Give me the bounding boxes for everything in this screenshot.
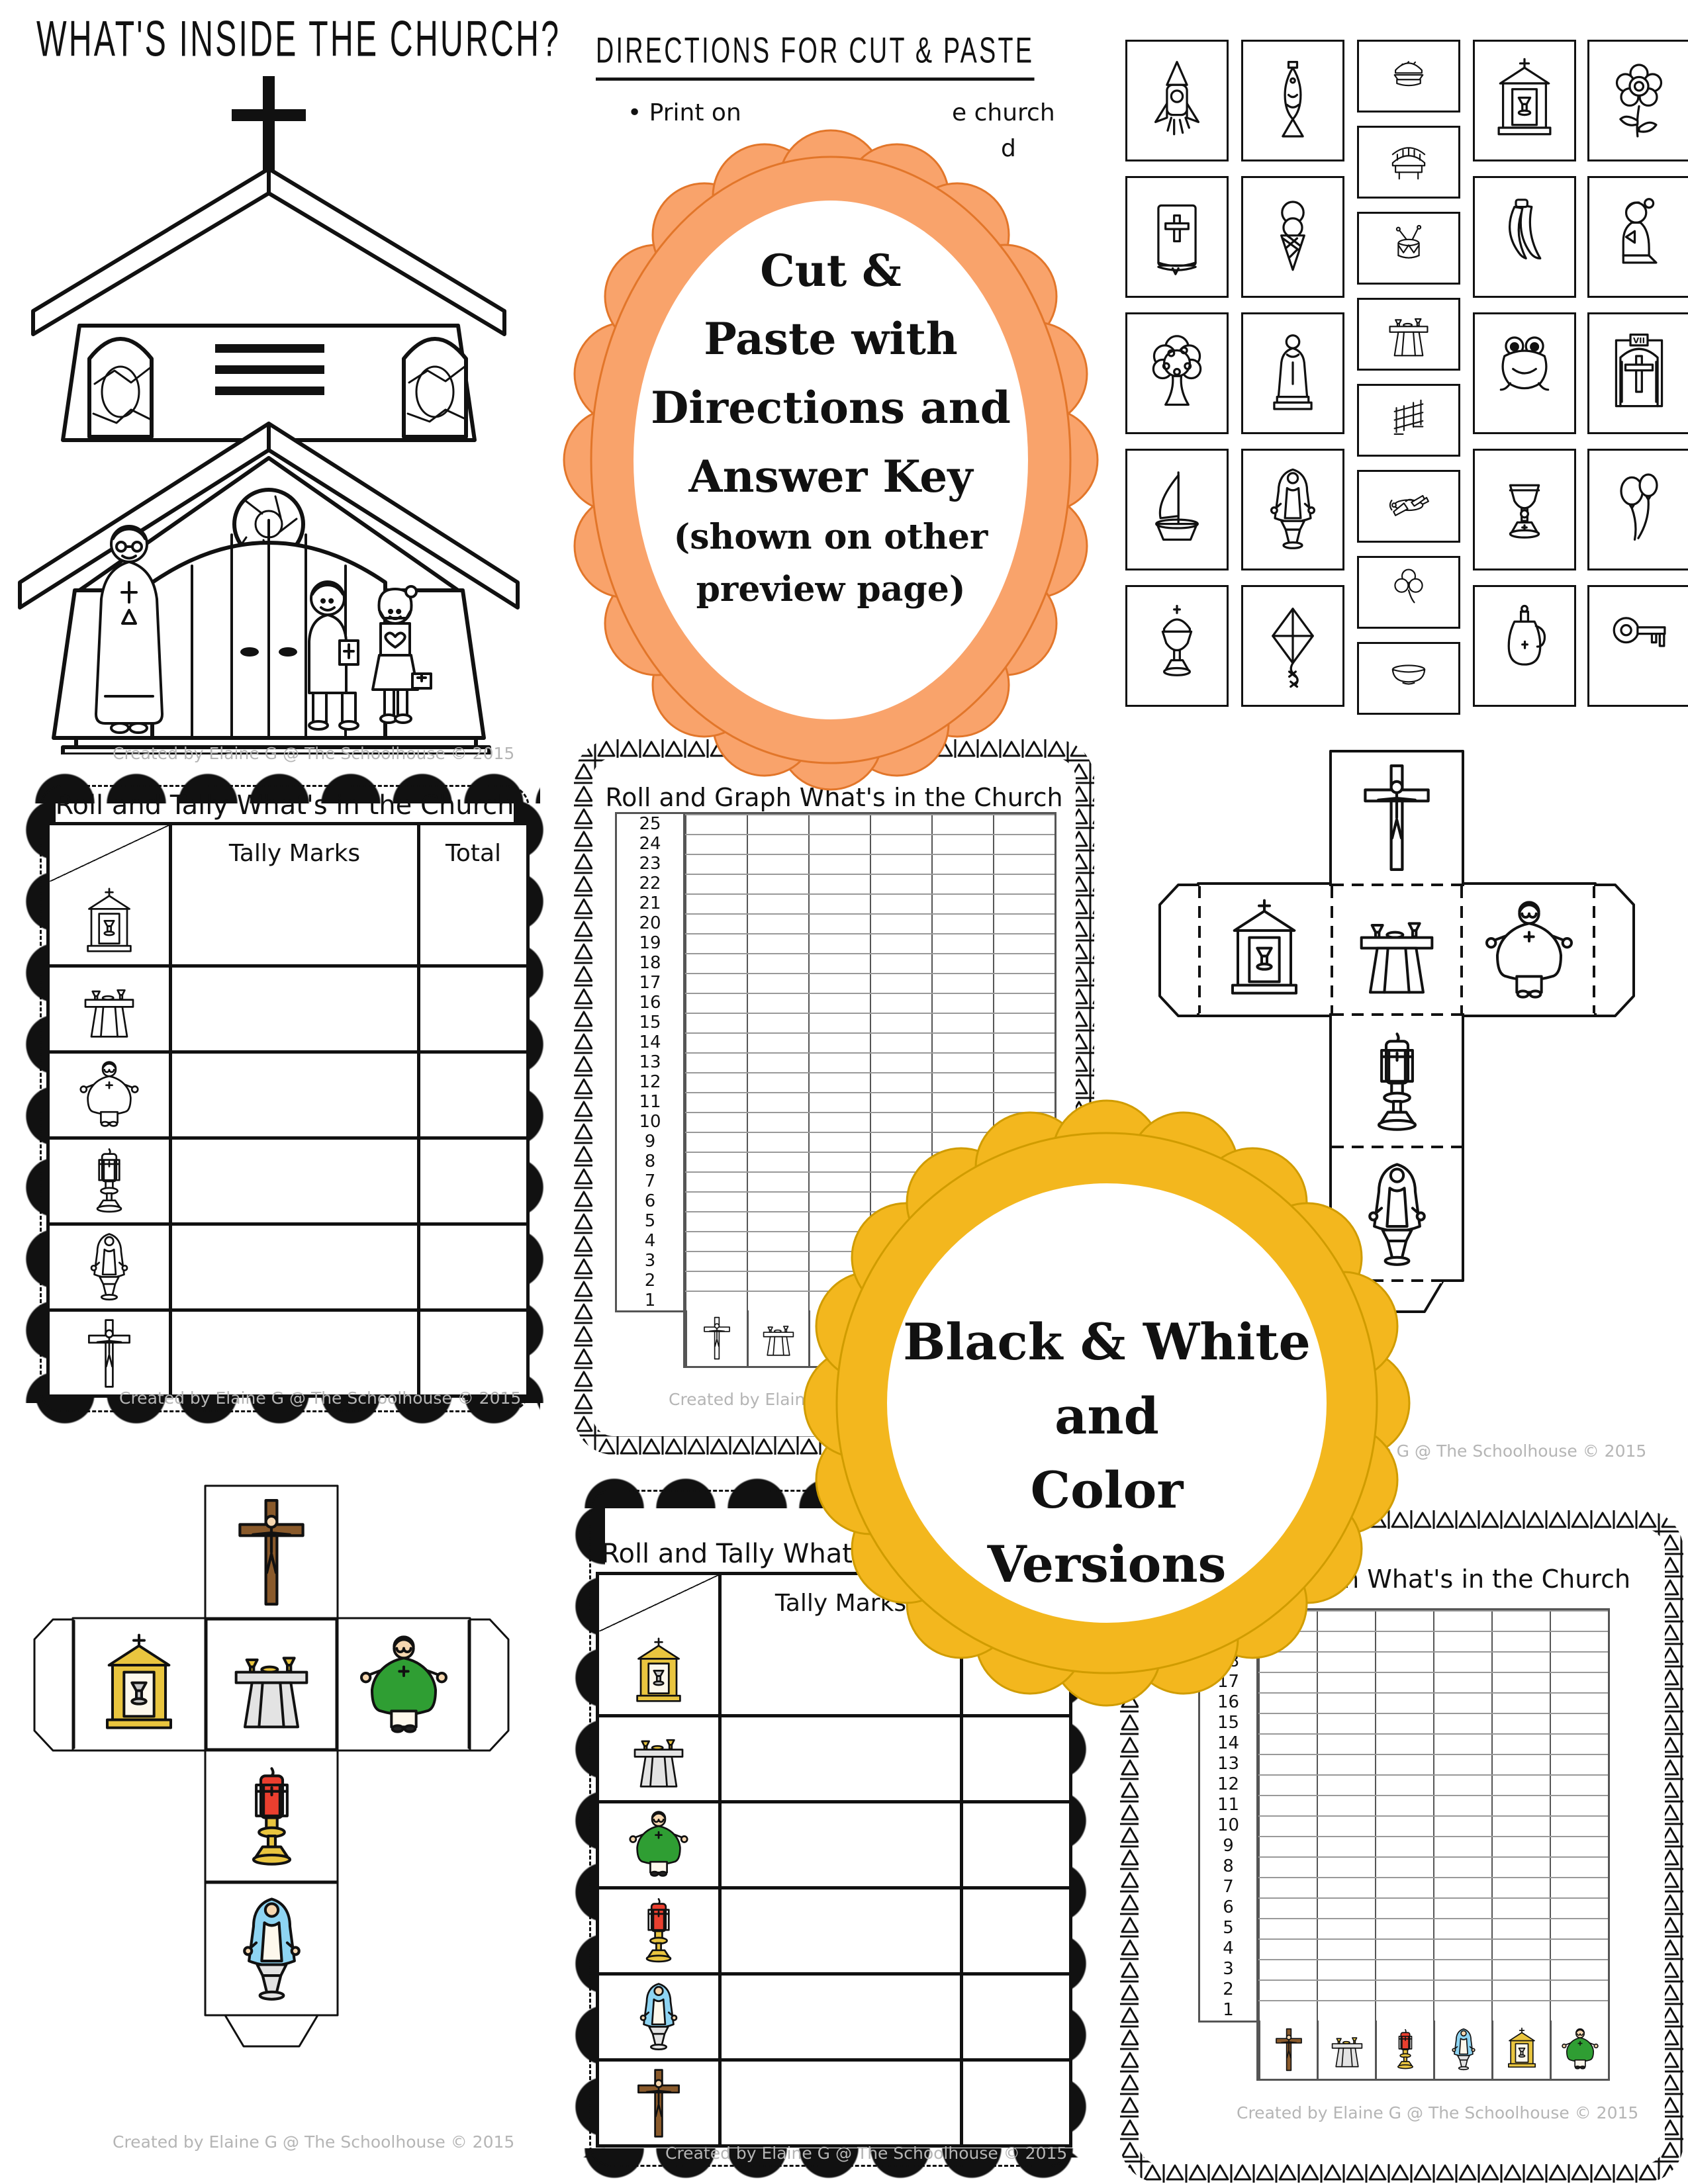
upper-roof (33, 169, 269, 334)
priest-icon (81, 1062, 138, 1126)
tally-marks-cell (169, 968, 417, 1050)
card-ice-cream (1241, 176, 1344, 298)
card-tree (1125, 312, 1229, 434)
tally-table-color: Tally Marks Total (596, 1572, 1072, 2148)
rocket-icon (1156, 62, 1199, 134)
orange-badge-text: Cut & Paste with Directions and Answer K… (626, 237, 1036, 615)
altar-icon (764, 1326, 794, 1355)
saint-icon (1274, 336, 1311, 409)
altar-icon (85, 990, 133, 1036)
steeple-cross-icon (263, 76, 275, 182)
axis-number: 19 (617, 933, 683, 953)
tally-corner-cell (50, 825, 169, 882)
axis-number: 12 (617, 1072, 683, 1092)
axis-number: 4 (1200, 1938, 1256, 1959)
tally-header-row: Tally Marks Total (50, 825, 526, 882)
mary-icon (1272, 470, 1315, 549)
axis-number: 22 (617, 874, 683, 893)
yellow-badge-text: Black & White and Color Versions (888, 1305, 1325, 1602)
tally-row (50, 882, 526, 964)
glue-tab-bottom (225, 2015, 318, 2046)
axis-number: 10 (1200, 1815, 1256, 1836)
axis-number: 4 (617, 1231, 683, 1251)
tally-sheet-bw: Roll and Tally What's in the Church Tall… (20, 768, 549, 1430)
tabernacle-icon (1499, 59, 1550, 134)
fish-icon (1283, 62, 1303, 136)
graph-grid-color: 2019181716151413121110987654321 (1198, 1608, 1610, 2023)
tally-total-header: Total (417, 825, 526, 882)
card-bible (1125, 176, 1229, 298)
glue-flap-left (1160, 885, 1198, 1016)
bridge-icon (1393, 148, 1425, 179)
frog-icon (1501, 338, 1548, 390)
graph-icon-cell (747, 1310, 808, 1366)
glue-tab-bottom (1350, 1281, 1443, 1312)
church-illustration (17, 53, 539, 754)
priest-icon (630, 1811, 687, 1876)
cards-column-1 (1125, 40, 1229, 707)
tally-total-cell (417, 1226, 526, 1308)
bananas-icon (1510, 200, 1540, 259)
shamrock-icon (1395, 570, 1422, 603)
axis-number: 13 (617, 1052, 683, 1072)
bible-icon (1158, 205, 1196, 274)
card-hamburger (1357, 40, 1460, 113)
candle-icon (833, 1318, 847, 1357)
door-handle (240, 647, 259, 657)
card-bowl (1357, 642, 1460, 715)
tally-marks-cell (718, 1889, 960, 1972)
axis-number: 7 (617, 1171, 683, 1191)
directions-heading: DIRECTIONS FOR CUT & PASTE (596, 29, 1034, 81)
axis-number: 15 (617, 1013, 683, 1032)
card-ciborium (1125, 585, 1229, 707)
card-rocket (1125, 40, 1229, 161)
graph-title-bw: Roll and Graph What's in the Church (573, 783, 1096, 812)
cards-column-3 (1357, 40, 1460, 715)
card-sailboat (1125, 449, 1229, 570)
tally-title-bw: Roll and Tally What's in the Church (20, 790, 549, 821)
tally-marks-cell (718, 1631, 960, 1714)
axis-number: 3 (1200, 1959, 1256, 1979)
cards-column-5 (1587, 40, 1688, 707)
credit-tally-bw: Created by Elaine G @ The Schoolhouse © … (119, 1388, 450, 1408)
card-saint (1241, 312, 1344, 434)
tally-row (50, 1050, 526, 1136)
praying-girl-icon (1623, 199, 1656, 263)
tabernacle-icon (637, 1638, 680, 1701)
tally-marks-header: Tally Marks (169, 825, 417, 882)
tally-row (50, 1308, 526, 1394)
graph-icon-cell (1550, 2021, 1608, 2079)
directions-bullet-fragment: • Print on (628, 99, 741, 126)
glue-flap-right (470, 1619, 508, 1751)
candle-icon (1397, 2030, 1412, 2069)
directions-bullet-fragment-right: e church (952, 99, 1055, 126)
card-mary (1241, 449, 1344, 570)
tally-row (50, 1222, 526, 1308)
axis-number: 13 (1200, 1754, 1256, 1774)
altar-icon (635, 1740, 682, 1786)
axis-number: 20 (1200, 1610, 1256, 1631)
tally-total-cell (960, 1976, 1069, 2058)
axis-number: 6 (617, 1191, 683, 1211)
axis-number: 12 (1200, 1774, 1256, 1795)
tally-total-cell (960, 2062, 1069, 2144)
credit-tally-color: Created by Elaine G @ The Schoolhouse © … (665, 2144, 996, 2163)
bowl-icon (1393, 666, 1425, 684)
tally-total-cell (960, 1803, 1069, 1886)
cruet-icon (1509, 606, 1544, 665)
altar-icon (1332, 2038, 1362, 2067)
card-praying-girl (1587, 176, 1688, 298)
axis-number: 6 (1200, 1897, 1256, 1918)
card-station (1587, 312, 1688, 434)
mary-icon (1452, 2029, 1475, 2070)
ciborium-icon (1162, 606, 1191, 676)
cards-column-2 (1241, 40, 1344, 707)
crucifix-icon (638, 2070, 679, 2136)
card-kneeler (1357, 384, 1460, 457)
axis-number: 17 (617, 973, 683, 993)
card-fish (1241, 40, 1344, 161)
balloons-icon (1621, 475, 1657, 539)
graph-icon-cell (1375, 2021, 1433, 2079)
stained-glass-window-left (89, 339, 152, 437)
priest-icon (1562, 2029, 1598, 2069)
tally-row (50, 964, 526, 1050)
tally-total-cell (417, 1312, 526, 1394)
graph-icon-cell (1258, 2021, 1317, 2079)
tally-marks-cell (718, 1803, 960, 1886)
axis-number: 1 (1200, 2000, 1256, 2021)
dice-net-bw (1152, 741, 1655, 1350)
tally-total-cell (417, 1140, 526, 1222)
graph-icon-cell (685, 1310, 747, 1366)
tally-row (599, 1800, 1069, 1886)
axis-number: 17 (1200, 1672, 1256, 1692)
graph-axis-color: 2019181716151413121110987654321 (1200, 1610, 1258, 2021)
axis-number: 18 (617, 953, 683, 973)
tally-row (599, 1972, 1069, 2058)
key-icon (1614, 618, 1665, 646)
card-tabernacle (1473, 40, 1576, 161)
tally-total-cell (960, 1889, 1069, 1972)
tally-row (50, 1136, 526, 1222)
credit-dice-color: Created by Elaine G @ The Schoolhouse © … (113, 2132, 457, 2152)
graph-icon-cell (808, 1310, 870, 1366)
tabernacle-icon (88, 888, 131, 951)
credit-graph-color: Created by Elaine G @ The Schoolhouse © … (1237, 2103, 1568, 2122)
axis-number: 16 (617, 993, 683, 1013)
ice-cream-icon (1282, 202, 1305, 270)
axis-number: 14 (1200, 1733, 1256, 1754)
axis-number: 15 (1200, 1713, 1256, 1733)
graph-icon-cell (1433, 2021, 1491, 2079)
mary-icon (91, 1234, 127, 1299)
graph-icon-row-color (1256, 2021, 1610, 2081)
card-airplane (1357, 470, 1460, 543)
axis-number: 16 (1200, 1692, 1256, 1713)
card-altar (1357, 298, 1460, 371)
dice-net-color (26, 1476, 530, 2085)
card-shamrock (1357, 556, 1460, 629)
axis-number: 21 (617, 893, 683, 913)
tally-marks-cell (718, 2062, 960, 2144)
axis-number: 5 (617, 1211, 683, 1231)
kneeler-icon (1395, 400, 1423, 434)
altar-icon (1390, 319, 1428, 355)
graph-icon-cell (1317, 2021, 1375, 2079)
tabernacle-icon (1508, 2028, 1534, 2068)
card-bridge (1357, 126, 1460, 199)
axis-number: 23 (617, 854, 683, 874)
graph-axis-bw: 2524232221201918171615141312111098765432… (617, 814, 685, 1310)
tally-total-cell (417, 882, 526, 964)
tally-corner-cell (599, 1575, 718, 1631)
tally-total-cell (960, 1631, 1069, 1714)
hamburger-icon (1395, 62, 1423, 86)
tally-row (599, 1886, 1069, 1972)
axis-number: 19 (1200, 1631, 1256, 1651)
axis-number: 3 (617, 1251, 683, 1271)
tally-marks-cell (169, 1054, 417, 1136)
cards-column-4 (1473, 40, 1576, 707)
worksheet-preview-page: VII WHAT'S INSIDE THE CHURCH? (0, 0, 1688, 2184)
axis-number: 9 (1200, 1836, 1256, 1856)
drum-icon (1397, 226, 1421, 258)
axis-number: 1 (617, 1291, 683, 1310)
airplane-icon (1390, 496, 1429, 516)
axis-number: 2 (617, 1271, 683, 1291)
tally-marks-cell (169, 882, 417, 964)
card-chalice (1473, 449, 1576, 570)
tally-marks-cell (718, 1976, 960, 2058)
mary-icon (641, 1983, 677, 2049)
sailboat-icon (1156, 473, 1198, 540)
candle-icon (647, 1899, 671, 1962)
axis-number: 10 (617, 1112, 683, 1132)
card-drum (1357, 212, 1460, 285)
crucifix-icon (89, 1320, 129, 1387)
axis-number: 5 (1200, 1918, 1256, 1938)
axis-number: 25 (617, 814, 683, 834)
tree-icon (1153, 336, 1200, 405)
tally-total-cell (417, 968, 526, 1050)
tally-total-cell (417, 1054, 526, 1136)
axis-number: 2 (1200, 1979, 1256, 2000)
station-icon (1616, 335, 1662, 406)
tally-total-cell (960, 1717, 1069, 1800)
axis-number: 18 (1200, 1651, 1256, 1672)
glue-flap-left (34, 1619, 73, 1751)
card-balloons (1587, 449, 1688, 570)
tally-row (599, 1714, 1069, 1800)
directions-bullet-fragment-cont: d (1001, 135, 1016, 162)
tally-row (599, 2058, 1069, 2144)
card-kite (1241, 585, 1344, 707)
crucifix-icon (1276, 2029, 1301, 2071)
vent-lines (215, 344, 324, 353)
card-cruet (1473, 585, 1576, 707)
flower-icon (1617, 65, 1662, 136)
axis-number: 9 (617, 1132, 683, 1152)
card-frog (1473, 312, 1576, 434)
graph-sheet-color: Roll and Graph What's in the Church 2019… (1119, 1509, 1685, 2184)
kite-icon (1273, 609, 1313, 687)
tally-marks-cell (169, 1312, 417, 1394)
card-flower (1587, 40, 1688, 161)
tally-row (599, 1631, 1069, 1714)
candle-icon (97, 1149, 121, 1212)
axis-number: 8 (617, 1152, 683, 1171)
axis-number: 24 (617, 834, 683, 854)
glue-flap-right (1595, 885, 1634, 1016)
tally-table-bw: Tally Marks Total (46, 822, 530, 1398)
axis-number: 14 (617, 1032, 683, 1052)
tally-marks-cell (718, 1717, 960, 1800)
directions-section: DIRECTIONS FOR CUT & PASTE (596, 29, 1066, 73)
axis-number: 20 (617, 913, 683, 933)
axis-number: 11 (617, 1092, 683, 1112)
axis-number: 7 (1200, 1877, 1256, 1897)
tally-marks-cell (169, 1140, 417, 1222)
axis-number: 8 (1200, 1856, 1256, 1877)
tally-marks-cell (169, 1226, 417, 1308)
axis-number: 11 (1200, 1795, 1256, 1815)
crucifix-icon (704, 1318, 729, 1359)
card-bananas (1473, 176, 1576, 298)
graph-grid-bw: 2524232221201918171615141312111098765432… (615, 812, 1056, 1312)
credit-church: Created by Elaine G @ The Schoolhouse © … (113, 744, 444, 763)
stained-glass-window-right (404, 339, 466, 437)
chalice-icon (1510, 485, 1538, 537)
card-key (1587, 585, 1688, 707)
graph-icon-cell (1491, 2021, 1550, 2079)
